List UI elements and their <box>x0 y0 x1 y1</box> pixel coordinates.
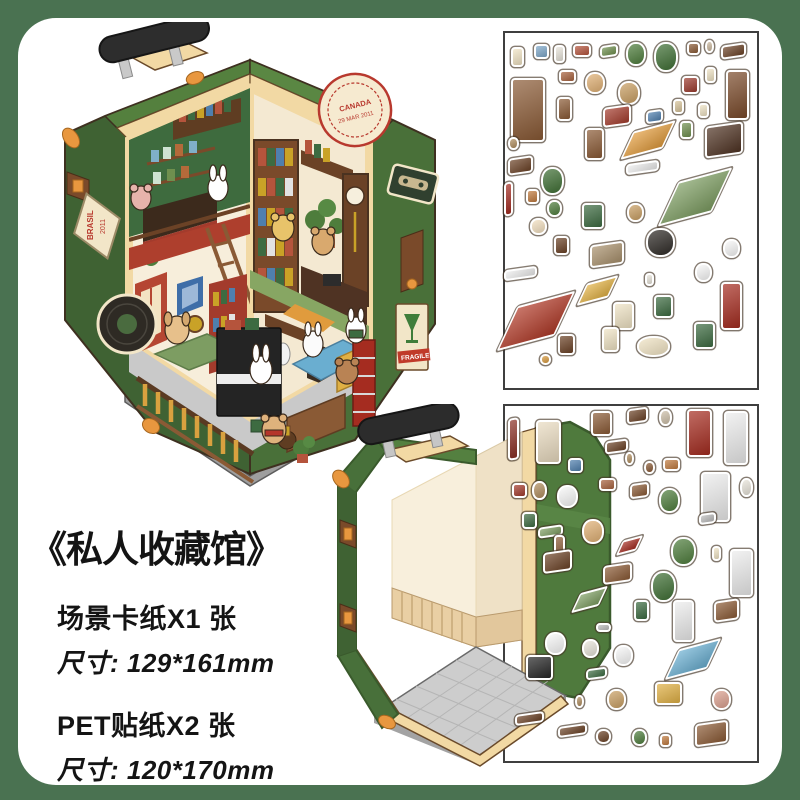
vinyl-record-sticker <box>646 228 675 257</box>
plant-table-sticker <box>558 334 575 355</box>
treasure-chest-sticker <box>627 406 648 424</box>
sunflower-bear-sticker <box>582 639 599 658</box>
hourglass-sticker <box>575 695 584 708</box>
tan-bear-icon <box>311 227 335 255</box>
globe-sticker <box>532 481 547 500</box>
kitchen-counter-sticker <box>590 240 624 268</box>
lantern-sticker <box>625 452 634 465</box>
small-vase-sticker <box>705 40 714 53</box>
photo-frame-sticker <box>534 44 549 59</box>
white-bunny-sticker <box>723 239 740 258</box>
green-case-sticker <box>600 44 618 59</box>
paper-tag-sticker <box>705 67 716 83</box>
clay-jar-sticker <box>644 461 655 474</box>
low-dresser-sticker <box>543 549 572 574</box>
scarf-bear-icon <box>261 414 287 444</box>
red-books-sticker <box>682 76 699 94</box>
green-ledger-sticker <box>522 512 537 529</box>
blue-frame-sticker <box>568 458 583 473</box>
potted-plant-sticker <box>547 200 562 217</box>
small-shelf-sticker <box>557 97 572 121</box>
potion-jar-sticker <box>659 409 672 426</box>
wall-shelf-2-sticker <box>605 438 628 454</box>
blue-box-sticker <box>646 109 663 124</box>
beige-book-sticker <box>673 99 684 114</box>
stickers-label: PET贴纸X2 张 <box>57 704 340 743</box>
bear-with-cup-sticker <box>618 81 640 105</box>
empty-left-shell <box>330 436 398 732</box>
white-vase-sticker <box>740 478 753 497</box>
pink-bear-sticker <box>712 689 731 710</box>
pink-bear-icon <box>130 184 152 210</box>
tag-label-sticker <box>511 47 524 67</box>
red-mat-sticker <box>616 535 643 556</box>
spec-stickers: PET贴纸X2 张 尺寸: 120*170mm <box>30 704 340 787</box>
arch-window-sticker <box>536 420 561 464</box>
yellow-bear-icon <box>271 213 295 241</box>
book-stack-sticker <box>573 44 591 57</box>
tall-bookshelf-sticker <box>511 78 545 142</box>
gray-box-sticker <box>699 512 716 525</box>
canada-stamp-sticker <box>637 336 670 357</box>
bear-with-book-sticker <box>582 519 604 544</box>
tan-bear-sticker <box>627 203 644 222</box>
red-pen-sticker <box>504 181 513 216</box>
gramophone-sticker <box>554 236 569 255</box>
gray-books-sticker <box>596 623 611 632</box>
sticker-sheet-2-items <box>503 404 759 763</box>
candle-lamp-sticker <box>554 45 565 63</box>
brown-sofa-sticker <box>695 719 728 747</box>
product-title: 《私人收藏馆》 <box>30 519 340 573</box>
stair-railing-2-sticker <box>558 723 587 738</box>
right-strap <box>401 230 423 292</box>
white-railing-sticker <box>626 160 659 176</box>
scarf-bear-sticker <box>607 689 626 710</box>
product-info: 《私人收藏馆》 场景卡纸X1 张 尺寸: 129*161mm PET贴纸X2 张… <box>30 519 340 787</box>
red-ladder-shelf-sticker <box>721 282 742 330</box>
fragile-label: FRAGILE <box>396 304 431 370</box>
white-cat-2-sticker <box>545 632 566 655</box>
potted-tree-sticker <box>651 571 676 602</box>
dresser-3-sticker <box>714 598 739 623</box>
small-frames-sticker <box>663 458 680 471</box>
green-cabinet-sticker <box>582 203 604 229</box>
wood-ladder-sticker <box>585 128 604 160</box>
green-bottle-sticker <box>680 121 693 139</box>
candle-sticker <box>645 273 654 286</box>
spec-cardstock: 场景卡纸X1 张 尺寸: 129*161mm <box>30 597 340 680</box>
hanging-plant-sticker <box>626 42 646 66</box>
clothes-rack-sticker <box>724 411 748 465</box>
paper-tag-2-sticker <box>698 103 709 118</box>
barrel-sticker <box>687 42 700 55</box>
white-cat-sticker <box>557 485 578 508</box>
gift-boxes-sticker <box>512 483 527 498</box>
stickers-size: 尺寸: 120*170mm <box>57 750 340 787</box>
white-bunny-2-sticker <box>695 263 712 282</box>
door-frame-sticker <box>673 600 694 642</box>
dark-dresser-sticker <box>705 122 743 159</box>
deer-head-sticker <box>591 411 612 436</box>
brasil-stamp-sticker <box>613 302 634 330</box>
cardstock-size: 尺寸: 129*161mm <box>57 643 340 680</box>
paper-tag-3-sticker <box>712 546 721 561</box>
bear-lamp-sticker <box>585 72 605 94</box>
potted-palm-sticker <box>654 42 678 72</box>
cardstock-label: 场景卡纸X1 张 <box>57 597 340 636</box>
green-rug-large-sticker <box>657 167 732 226</box>
green-mat-sticker <box>570 585 607 613</box>
orange-rug-sticker <box>620 120 676 160</box>
blue-rug-sticker <box>664 638 721 680</box>
clothes-rack-2-sticker <box>730 549 753 597</box>
round-table-sticker <box>596 729 611 744</box>
small-frame-sticker <box>660 734 671 747</box>
display-shelf-sticker <box>603 562 632 585</box>
white-railing-2-sticker <box>504 266 537 282</box>
palm-plant-2-sticker <box>541 167 564 195</box>
honey-jar-sticker <box>508 137 519 150</box>
sticker-sheet-1-items <box>503 31 759 390</box>
green-stool-sticker <box>634 600 649 621</box>
grandfather-clock-sticker <box>726 70 749 120</box>
glass-sign-sticker <box>602 327 619 352</box>
yellow-armchair-sticker <box>655 682 682 705</box>
panda-sticker-sticker <box>614 645 633 666</box>
dog-icon <box>164 312 190 344</box>
wood-frame-sticker <box>526 189 539 204</box>
plant-pot-2-sticker <box>659 488 680 513</box>
pizza-slice-sticker <box>540 354 551 365</box>
wall-shelf-sticker <box>721 42 746 60</box>
sideboard-sticker <box>508 155 533 176</box>
book-pile-sticker <box>599 478 616 491</box>
potted-plant-3-sticker <box>632 729 647 746</box>
bunny-sticker-sticker <box>530 218 547 235</box>
monstera-plant-sticker <box>671 537 696 566</box>
upright-piano-sticker <box>526 655 553 680</box>
red-door-sticker <box>687 409 712 457</box>
svg-text:2011: 2011 <box>100 219 107 234</box>
yellow-rug-sticker <box>576 274 618 305</box>
curtain-rod-sticker <box>508 418 519 462</box>
green-pennant-sticker <box>694 322 715 349</box>
stair-railing-sticker <box>515 711 544 726</box>
shelf-items-sticker <box>630 482 649 500</box>
product-image: BRASIL 2011 CANADA 29 MAR 2011 FRAG <box>0 0 800 800</box>
svg-text:BRASIL: BRASIL <box>86 210 95 240</box>
dartboard-sign-sticker <box>654 295 673 318</box>
record-sticker <box>98 295 156 353</box>
mini-books-sticker <box>559 70 576 83</box>
red-bench-books-sticker <box>603 104 631 128</box>
green-bench-sticker <box>586 666 607 680</box>
brown-bear-icon <box>335 358 359 384</box>
